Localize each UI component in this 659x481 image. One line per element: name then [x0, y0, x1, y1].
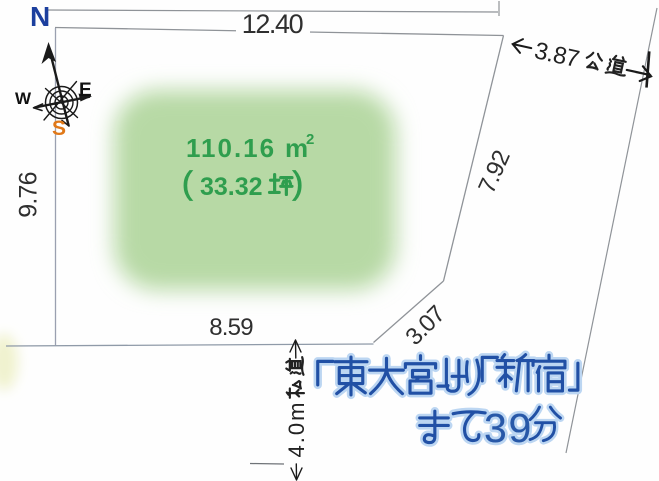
svg-text:E: E — [79, 80, 92, 101]
svg-text:N: N — [30, 1, 50, 32]
svg-text:110.16: 110.16 — [186, 133, 276, 163]
svg-text:(: ( — [182, 165, 193, 201]
svg-text:4.0m: 4.0m — [284, 401, 309, 458]
svg-text:3: 3 — [484, 405, 507, 451]
svg-text:2: 2 — [306, 131, 314, 148]
svg-text:33.32: 33.32 — [200, 173, 263, 201]
svg-text:3.87: 3.87 — [532, 37, 582, 73]
svg-text:3.07: 3.07 — [400, 301, 450, 351]
svg-text:8.59: 8.59 — [209, 314, 253, 341]
svg-text:9.76: 9.76 — [15, 172, 43, 217]
svg-text:m: m — [285, 133, 308, 163]
svg-text:12.40: 12.40 — [242, 9, 303, 39]
svg-text:S: S — [52, 117, 66, 140]
svg-text:W: W — [15, 89, 32, 108]
svg-text:7.92: 7.92 — [473, 146, 516, 197]
svg-text:): ) — [293, 165, 304, 201]
svg-text:9: 9 — [509, 405, 532, 451]
